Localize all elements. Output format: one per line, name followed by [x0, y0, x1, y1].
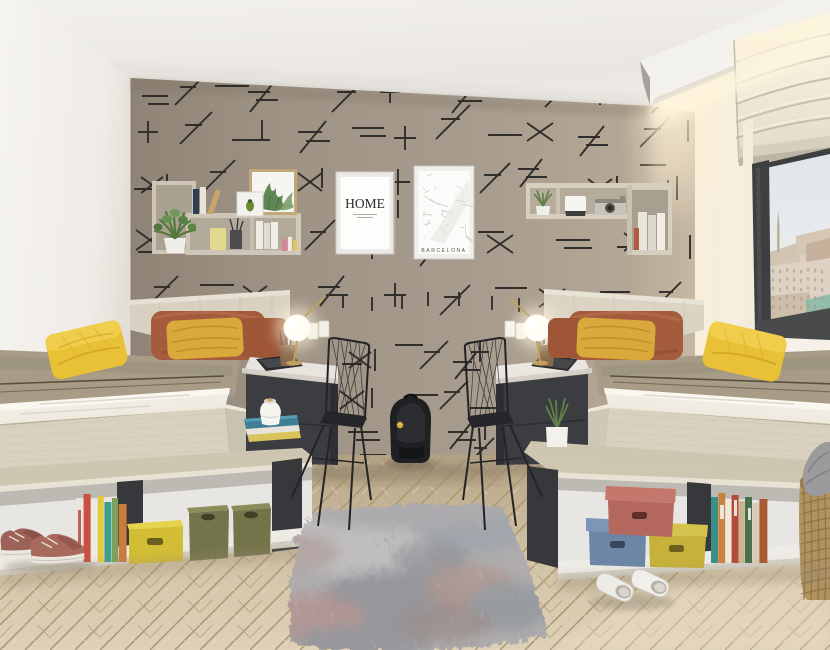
- svg-text:BARCELONA: BARCELONA: [421, 248, 466, 254]
- svg-text:HOME: HOME: [345, 196, 385, 211]
